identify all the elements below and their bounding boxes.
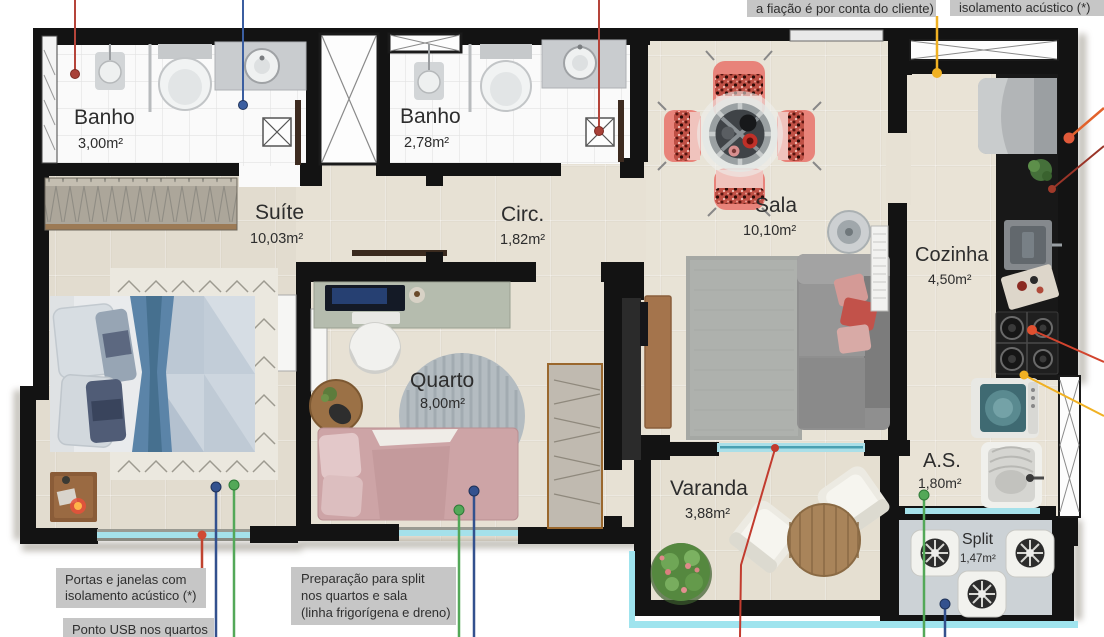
svg-text:Banho: Banho [400,105,461,128]
svg-text:10,03m²: 10,03m² [250,231,303,247]
svg-text:1,47m²: 1,47m² [960,553,996,565]
svg-text:1,82m²: 1,82m² [500,232,545,248]
svg-text:3,00m²: 3,00m² [78,136,123,152]
svg-text:A.S.: A.S. [923,450,961,472]
svg-text:8,00m²: 8,00m² [420,396,465,412]
svg-text:Cozinha: Cozinha [915,244,989,266]
svg-text:isolamento acústico (*): isolamento acústico (*) [959,0,1091,15]
svg-text:Split: Split [962,531,994,548]
svg-text:4,50m²: 4,50m² [928,271,972,287]
svg-text:a fiação é por conta do client: a fiação é por conta do cliente) [756,1,934,16]
svg-text:(linha frigorígena e dreno): (linha frigorígena e dreno) [301,605,451,620]
svg-text:Portas e janelas com: Portas e janelas com [65,572,186,587]
svg-text:10,10m²: 10,10m² [743,223,796,239]
svg-text:Ponto USB nos quartos: Ponto USB nos quartos [72,622,208,637]
svg-text:Suíte: Suíte [255,201,304,224]
svg-text:nos quartos e sala: nos quartos e sala [301,588,408,603]
svg-text:Preparação para split: Preparação para split [301,571,425,586]
svg-text:Varanda: Varanda [670,477,748,500]
svg-text:Banho: Banho [74,106,135,129]
svg-text:2,78m²: 2,78m² [404,135,449,151]
svg-text:Circ.: Circ. [501,203,544,226]
svg-text:Sala: Sala [755,194,797,217]
svg-text:3,88m²: 3,88m² [685,506,730,522]
svg-text:1,80m²: 1,80m² [918,475,962,491]
svg-text:isolamento acústico (*): isolamento acústico (*) [65,588,197,603]
svg-text:Quarto: Quarto [410,369,474,392]
